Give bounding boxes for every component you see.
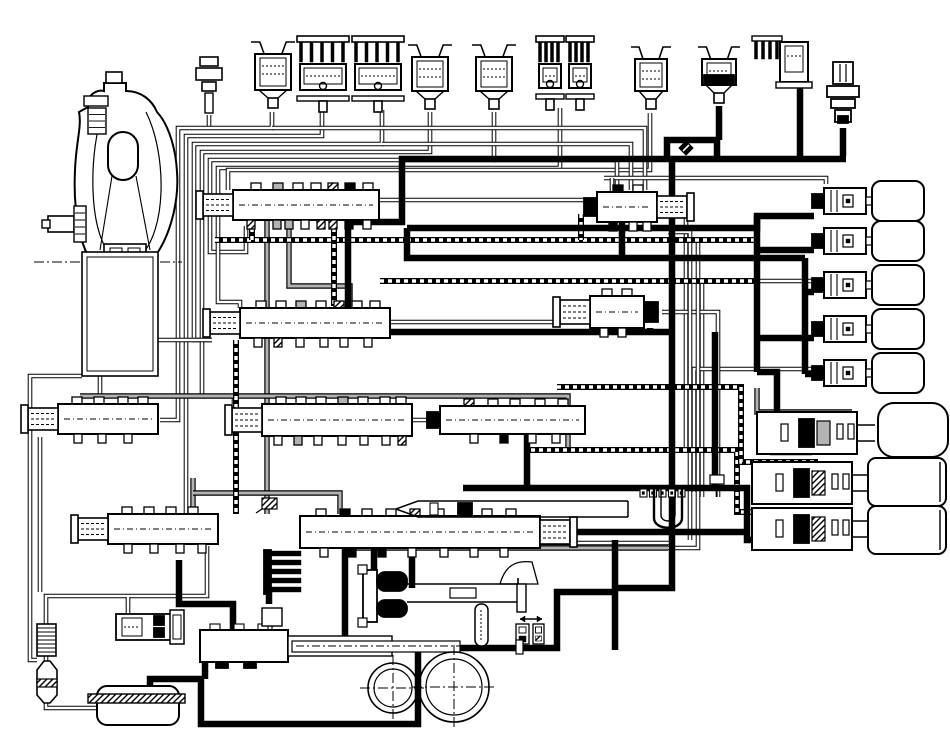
linear-solenoid-2b (566, 36, 594, 110)
hydraulic-circuit-canvas (0, 0, 950, 742)
modulator-valve-left (21, 397, 158, 443)
shift-solenoid-5-energized (698, 47, 740, 103)
thin-passage-27 (46, 703, 98, 708)
linear-solenoid-1b (352, 36, 404, 112)
servo-3 (752, 506, 946, 554)
torque-converter (34, 72, 182, 276)
hydraulic-components (21, 36, 948, 729)
linear-solenoid-3 (752, 36, 812, 88)
gray-passage-35 (757, 388, 852, 412)
accumulator-3 (812, 265, 924, 305)
servo-2 (752, 458, 946, 506)
regulator-valve (196, 183, 379, 229)
manual-valve (358, 562, 544, 646)
accumulator-2 (812, 221, 924, 261)
shift-solenoid-1 (251, 42, 295, 108)
low-coast-valve (71, 507, 218, 553)
suction-filter (37, 661, 57, 703)
oil-pan (88, 686, 185, 725)
fluid-temp-sensor (196, 57, 222, 113)
thin-passage-12 (604, 178, 826, 184)
transmission-hydraulic-diagram (0, 0, 950, 742)
oil-pump-gears (360, 645, 496, 729)
servo-1 (757, 403, 948, 457)
cutback-valve (116, 610, 184, 644)
shift-solenoid-3 (472, 45, 516, 109)
accumulator-5 (812, 353, 924, 393)
shift-solenoid-2 (408, 45, 452, 109)
shift-solenoid-4 (631, 47, 671, 109)
oil-cooler (37, 624, 56, 656)
lockup-relay-valve (584, 185, 694, 231)
converter-drum (82, 252, 158, 376)
gray-passage-32 (289, 220, 350, 306)
pressure-switch (827, 62, 859, 123)
detent-comb (264, 550, 301, 594)
accumulator-4 (812, 309, 924, 349)
linear-solenoid-2a (536, 36, 564, 110)
shift-valve-4 (427, 399, 585, 443)
linear-solenoid-1a (297, 36, 349, 112)
shift-valve-1 (203, 301, 390, 347)
thin-passage-11 (494, 160, 617, 190)
shift-valve-3 (225, 397, 412, 445)
accumulator-1 (812, 181, 924, 221)
